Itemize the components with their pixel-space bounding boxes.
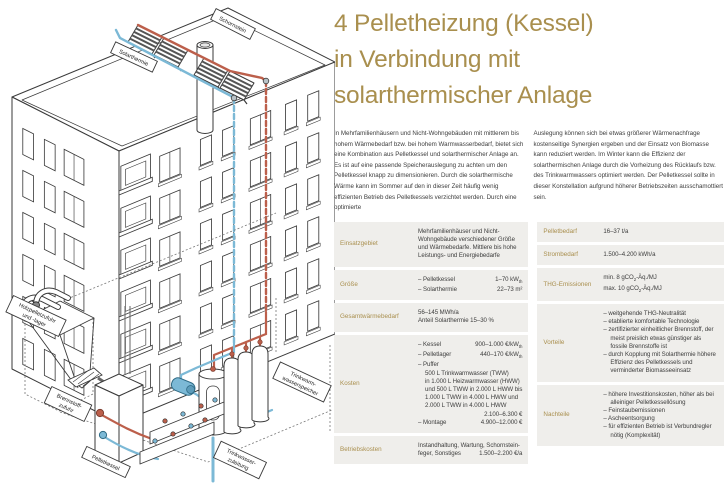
spec-line: – Puffer bbox=[418, 361, 522, 369]
window bbox=[200, 219, 211, 250]
spec-bullet-line: – durch Kopplung mit Solarthermie höhere… bbox=[603, 351, 718, 376]
spec-row-strombedarf: Strombedarf1.500–4.200 kWh/a bbox=[537, 245, 724, 265]
window bbox=[286, 226, 297, 257]
spec-tables: EinsatzgebietMehrfamilienhäuser und Nich… bbox=[334, 222, 724, 465]
spec-content: 56–145 MWh/aAnteil Solarthermie 15–30 % bbox=[418, 309, 522, 325]
page-title-line: solarthermischer Anlage bbox=[334, 78, 724, 114]
spec-row-vorteile: Vorteile– weitgehende THG-Neutralität– e… bbox=[537, 304, 724, 382]
window bbox=[44, 139, 55, 170]
spec-content: – höhere Investitionskosten, höher als b… bbox=[603, 391, 718, 440]
spec-line-text: – Puffer bbox=[418, 361, 439, 369]
spec-bullet-line: – für effizienten Betrieb ist Verbundreg… bbox=[603, 423, 718, 439]
spec-line-text: 16–37 t/a bbox=[603, 228, 628, 236]
spec-content: Instandhaltung, Wartung, Schornstein-feg… bbox=[418, 442, 522, 458]
spec-label: Größe bbox=[340, 276, 412, 295]
spec-line: 56–145 MWh/a bbox=[418, 309, 522, 317]
spec-line-text: – Kessel bbox=[418, 341, 441, 351]
diagram-label-trinkwasserzuleitung: Trinkwasser- zuleitung bbox=[214, 441, 267, 478]
spec-bullet-line: – Feinstaubemissionen bbox=[603, 407, 718, 415]
spec-line-text: – etablierte komfortable Technologie bbox=[603, 318, 699, 325]
spec-row-groesse: Größe– Pelletkessel1–70 kWth– Solartherm… bbox=[334, 270, 528, 301]
spec-line-text: – Pelletlager bbox=[418, 351, 451, 361]
window bbox=[308, 91, 319, 122]
window bbox=[286, 184, 297, 215]
spec-line-text: – Ascheentsorgung bbox=[603, 415, 654, 422]
boiler-hot-valve bbox=[96, 409, 103, 416]
spec-bullet-line: – Ascheentsorgung bbox=[603, 415, 718, 423]
spec-line-text: in 1.000 L Heizwarmwasser (HWW) bbox=[425, 378, 520, 386]
window bbox=[23, 338, 34, 369]
spec-line-text: 1.000 L TWW in 4.000 L HWW und bbox=[425, 394, 518, 402]
spec-line-text: – zertifizierter einheitlicher Brennstof… bbox=[603, 326, 713, 349]
window bbox=[223, 210, 234, 241]
page-title: 4 Pelletheizung (Kessel) in Verbindung m… bbox=[334, 6, 724, 114]
window bbox=[223, 294, 234, 325]
window bbox=[308, 217, 319, 248]
spec-line-text: Anteil Solarthermie 15–30 % bbox=[418, 317, 494, 325]
heating-manifolds bbox=[140, 402, 224, 464]
window bbox=[308, 133, 319, 164]
spec-line: max. 10 gCO2-Äq./MJ bbox=[603, 285, 718, 295]
spec-line: 1.000 L TWW in 4.000 L HWW und bbox=[418, 394, 522, 402]
spec-label: Nachteile bbox=[543, 391, 597, 440]
building-diagram: Schornstein Solarthermie Holzpelletzufuh… bbox=[0, 0, 335, 485]
spec-table-left: EinsatzgebietMehrfamilienhäuser und Nich… bbox=[334, 222, 528, 465]
pipe-connector bbox=[230, 352, 234, 356]
spec-line-text: – höhere Investitionskosten, höher als b… bbox=[603, 391, 713, 406]
window bbox=[44, 349, 55, 380]
spec-line-text: – Pelletkessel bbox=[418, 276, 455, 286]
window bbox=[44, 181, 55, 212]
spec-line-text: min. 8 gCO2-Äq./MJ bbox=[603, 274, 656, 284]
buffer-tanks bbox=[224, 340, 269, 434]
spec-line-text: 2.000 L TWW in 4.000 L HWW bbox=[425, 402, 506, 410]
spec-line-text: feger, Sonstiges bbox=[418, 450, 461, 458]
window bbox=[200, 177, 211, 208]
spec-line: – Pelletkessel1–70 kWth bbox=[418, 276, 522, 286]
spec-line-text: – für effizienten Betrieb ist Verbundreg… bbox=[603, 423, 711, 438]
pipe-connector bbox=[163, 419, 167, 423]
spec-line: – Pelletlager440–170 €/kWth bbox=[418, 351, 522, 361]
spec-line-text: – durch Kopplung mit Solarthermie höhere… bbox=[603, 351, 716, 374]
pipe-connector bbox=[244, 346, 248, 350]
spec-bullet-line: – etablierte komfortable Technologie bbox=[603, 318, 718, 326]
intro-column-1: In Mehrfamilienhäusern und Nicht-Wohngeb… bbox=[334, 129, 525, 214]
spec-label: THG-Emissionen bbox=[543, 274, 597, 295]
spec-line-text: Instandhaltung, Wartung, Schornstein- bbox=[418, 442, 520, 450]
spec-line-value: 440–170 €/kWth bbox=[480, 351, 522, 361]
spec-line-value: 1.500–2.200 €/a bbox=[479, 450, 522, 458]
window bbox=[23, 128, 34, 159]
spec-row-einsatzgebiet: EinsatzgebietMehrfamilienhäuser und Nich… bbox=[334, 222, 528, 267]
buffer-tank bbox=[252, 346, 269, 422]
window bbox=[308, 175, 319, 206]
window bbox=[23, 212, 34, 243]
spec-line: 16–37 t/a bbox=[603, 228, 718, 236]
pipe-connector bbox=[171, 432, 175, 436]
spec-row-thg-emissionen: THG-Emissionenmin. 8 gCO2-Äq./MJmax. 10 … bbox=[537, 268, 724, 301]
window bbox=[200, 135, 211, 166]
window bbox=[286, 310, 297, 341]
window bbox=[223, 126, 234, 157]
pipe-connector bbox=[258, 340, 262, 344]
spec-line: in 1.000 L Heizwarmwasser (HWW) bbox=[418, 378, 522, 386]
spec-label: Pelletbedarf bbox=[543, 228, 597, 236]
window bbox=[308, 259, 319, 290]
pipe-connector bbox=[199, 404, 203, 408]
page-title-line: 4 Pelletheizung (Kessel) bbox=[334, 6, 724, 42]
spec-line-text: 500 L Trinkwarmwasser (TWW) bbox=[425, 370, 509, 378]
spec-label: Vorteile bbox=[543, 310, 597, 376]
spec-line-value: 2.100–6.300 € bbox=[484, 411, 522, 419]
boiler-cold-valve bbox=[99, 431, 106, 438]
window bbox=[23, 170, 34, 201]
window bbox=[44, 223, 55, 254]
window bbox=[223, 252, 234, 283]
spec-line: 1.500–4.200 kWh/a bbox=[603, 251, 718, 259]
pipe-connector bbox=[203, 418, 207, 422]
spec-content: 16–37 t/a bbox=[603, 228, 718, 236]
pipe-connector bbox=[211, 367, 216, 372]
spec-line: – Montage4.900–12.000 € bbox=[418, 419, 522, 427]
spec-content: 1.500–4.200 kWh/a bbox=[603, 251, 718, 259]
spec-line-text: Mehrfamilienhäuser und Nicht-Wohngebäude… bbox=[418, 228, 517, 260]
spec-row-nachteile: Nachteile– höhere Investitionskosten, hö… bbox=[537, 385, 724, 446]
page: Schornstein Solarthermie Holzpelletzufuh… bbox=[0, 0, 728, 485]
spec-line: Anteil Solarthermie 15–30 % bbox=[418, 317, 522, 325]
spec-line: – Solarthermie22–73 m² bbox=[418, 286, 522, 294]
page-title-line: in Verbindung mit bbox=[334, 42, 724, 78]
chimney-flue-opening bbox=[200, 43, 210, 47]
spec-content: – Kessel900–1.000 €/kWth– Pelletlager440… bbox=[418, 341, 522, 427]
spec-line-value: 900–1.000 €/kWth bbox=[475, 341, 522, 351]
spec-line-text: und 500 L TWW in 2.000 L HWW bis bbox=[425, 386, 522, 394]
spec-label: Strombedarf bbox=[543, 251, 597, 259]
spec-row-pelletbedarf: Pelletbedarf16–37 t/a bbox=[537, 222, 724, 242]
spec-label: Kosten bbox=[340, 341, 412, 427]
spec-bullet-line: – zertifizierter einheitlicher Brennstof… bbox=[603, 326, 718, 351]
pipe-connector bbox=[263, 78, 269, 84]
window bbox=[223, 168, 234, 199]
window bbox=[23, 254, 34, 285]
spec-line-value: 1–70 kWth bbox=[495, 276, 522, 286]
intro-column-2: Auslegung können sich bei etwas größerer… bbox=[534, 129, 725, 214]
spec-line-value: 4.900–12.000 € bbox=[481, 419, 523, 427]
pipe-connector bbox=[189, 424, 193, 428]
pipe-connector bbox=[213, 398, 217, 402]
spec-line: und 500 L TWW in 2.000 L HWW bis bbox=[418, 386, 522, 394]
spec-line: 2.000 L TWW in 4.000 L HWW bbox=[418, 402, 522, 410]
window bbox=[286, 142, 297, 173]
pipe-connector bbox=[231, 95, 237, 101]
window bbox=[200, 303, 211, 334]
spec-row-gesamtwaermebedarf: Gesamtwärmebedarf56–145 MWh/aAnteil Sola… bbox=[334, 303, 528, 331]
spec-content: – weitgehende THG-Neutralität– etabliert… bbox=[603, 310, 718, 376]
pipe-connector bbox=[153, 439, 157, 443]
spec-line-text: – Montage bbox=[418, 419, 446, 427]
spec-line: Mehrfamilienhäuser und Nicht-Wohngebäude… bbox=[418, 228, 522, 261]
spec-line: Instandhaltung, Wartung, Schornstein- bbox=[418, 442, 522, 450]
spec-line: 500 L Trinkwarmwasser (TWW) bbox=[418, 370, 522, 378]
spec-content: min. 8 gCO2-Äq./MJmax. 10 gCO2-Äq./MJ bbox=[603, 274, 718, 295]
spec-line: feger, Sonstiges1.500–2.200 €/a bbox=[418, 450, 522, 458]
spec-line-text: max. 10 gCO2-Äq./MJ bbox=[603, 285, 661, 295]
spec-row-kosten: Kosten– Kessel900–1.000 €/kWth– Pelletla… bbox=[334, 335, 528, 433]
spec-line-value: 22–73 m² bbox=[497, 286, 522, 294]
pellet-boiler bbox=[95, 374, 143, 463]
spec-bullet-line: – weitgehende THG-Neutralität bbox=[603, 310, 718, 318]
spec-line-text: – Solarthermie bbox=[418, 286, 457, 294]
window bbox=[308, 301, 319, 332]
window bbox=[286, 268, 297, 299]
spec-table-right: Pelletbedarf16–37 t/aStrombedarf1.500–4.… bbox=[537, 222, 724, 446]
pipe-connector bbox=[181, 412, 185, 416]
spec-content: Mehrfamilienhäuser und Nicht-Wohngebäude… bbox=[418, 228, 522, 261]
spec-line-text: – weitgehende THG-Neutralität bbox=[603, 310, 685, 317]
spec-label: Gesamtwärmebedarf bbox=[340, 309, 412, 325]
spec-label: Betriebskosten bbox=[340, 442, 412, 458]
spec-line: – Kessel900–1.000 €/kWth bbox=[418, 341, 522, 351]
spec-line-text: 56–145 MWh/a bbox=[418, 309, 459, 317]
spec-label: Einsatzgebiet bbox=[340, 228, 412, 261]
spec-row-betriebskosten: BetriebskostenInstandhaltung, Wartung, S… bbox=[334, 436, 528, 464]
diagram-label-trinkwarmwasserspeicher: Trinkwarm- wasserspeicher bbox=[273, 362, 331, 402]
spec-content: – Pelletkessel1–70 kWth– Solarthermie22–… bbox=[418, 276, 522, 295]
spec-bullet-line: – höhere Investitionskosten, höher als b… bbox=[603, 391, 718, 407]
window bbox=[200, 261, 211, 292]
spec-line: min. 8 gCO2-Äq./MJ bbox=[603, 274, 718, 284]
spec-line-text: 1.500–4.200 kWh/a bbox=[603, 251, 655, 259]
spec-line-text: – Feinstaubemissionen bbox=[603, 407, 665, 414]
window bbox=[286, 100, 297, 131]
content-panel: 4 Pelletheizung (Kessel) in Verbindung m… bbox=[334, 0, 724, 464]
intro-text: In Mehrfamilienhäusern und Nicht-Wohngeb… bbox=[334, 129, 724, 214]
spec-line: 2.100–6.300 € bbox=[418, 411, 522, 419]
